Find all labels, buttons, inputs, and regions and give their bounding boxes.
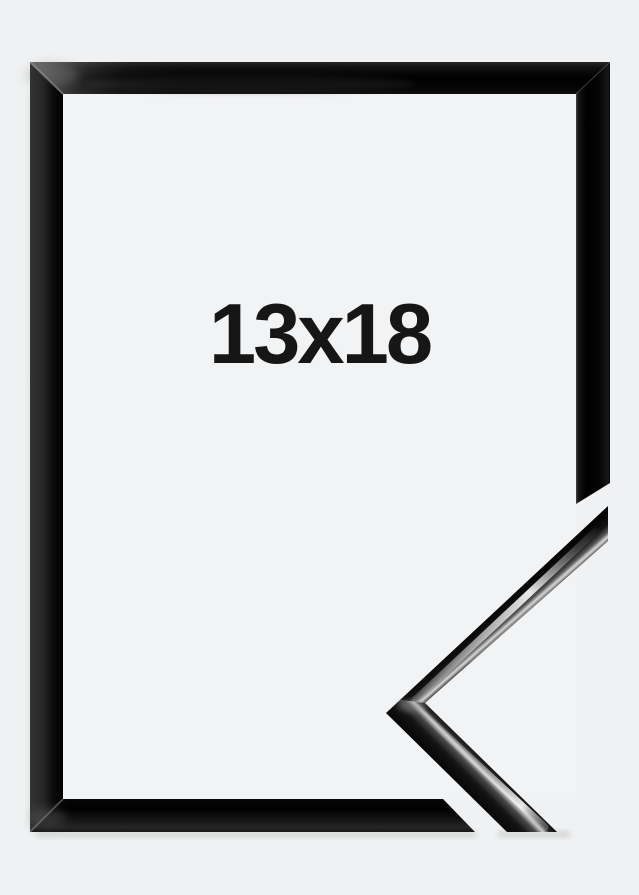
frame-backing (63, 94, 576, 799)
frame-graphic (0, 0, 639, 895)
frame-right-border (576, 62, 610, 504)
product-photo: 13x18 (0, 0, 639, 895)
frame-bottom-border (30, 799, 475, 832)
frame-size-label: 13x18 (0, 292, 639, 377)
frame-left-border (30, 62, 63, 832)
